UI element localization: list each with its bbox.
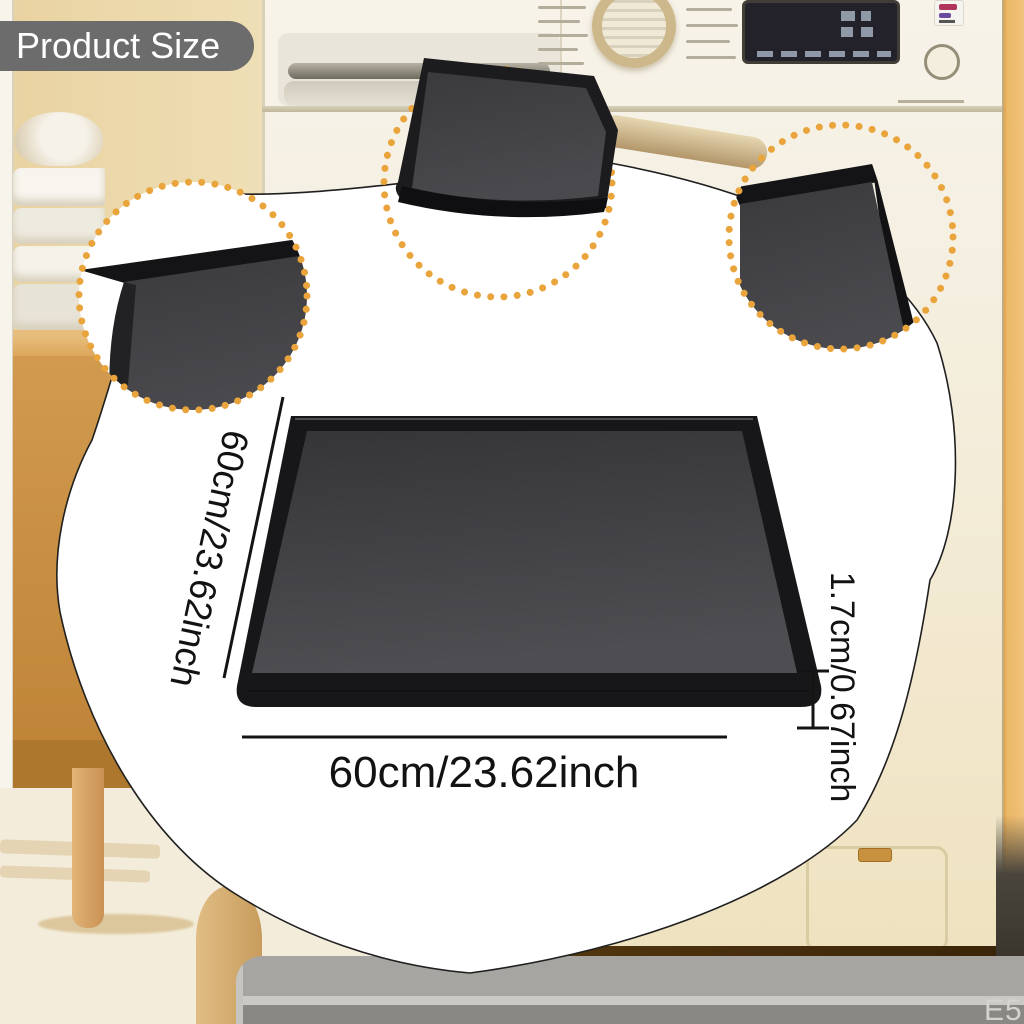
product-size-badge: Product Size [0, 21, 254, 71]
mat-corner-center [396, 58, 618, 217]
height-dimension-label: 1.7cm/0.67inch [817, 547, 861, 827]
product-mat [237, 416, 822, 707]
product-size-image: 60cm/23.62inch 60cm/23.62inch 1.7cm/0.67… [0, 0, 1024, 1024]
bottom-dimension-label: 60cm/23.62inch [264, 748, 704, 798]
watermark: E5 [984, 994, 1023, 1024]
annotation-overlay [0, 0, 1024, 1024]
